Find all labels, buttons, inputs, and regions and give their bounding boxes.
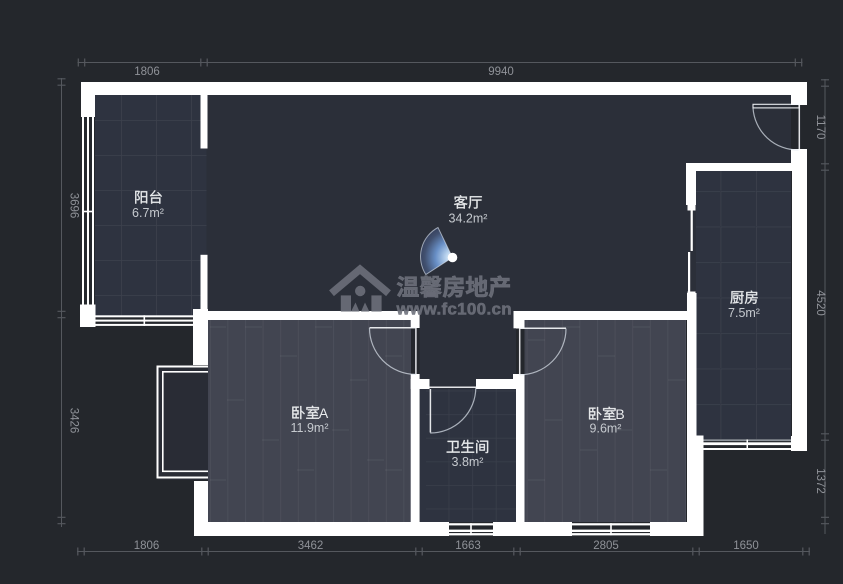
svg-text:9940: 9940 — [488, 66, 514, 78]
svg-text:3696: 3696 — [68, 193, 80, 219]
svg-text:34.2m²: 34.2m² — [449, 211, 488, 225]
svg-text:11.9m²: 11.9m² — [291, 421, 329, 435]
svg-text:3462: 3462 — [298, 540, 324, 552]
svg-text:4520: 4520 — [814, 290, 826, 316]
svg-text:1650: 1650 — [733, 540, 759, 552]
svg-text:2805: 2805 — [593, 540, 619, 552]
svg-text:1806: 1806 — [134, 540, 160, 552]
svg-text:www.fc100.cn: www.fc100.cn — [396, 300, 512, 319]
svg-text:B: B — [615, 406, 624, 422]
svg-text:1806: 1806 — [134, 66, 160, 78]
svg-text:1170: 1170 — [814, 115, 826, 140]
svg-text:6.7m²: 6.7m² — [132, 206, 164, 220]
svg-text:A: A — [319, 405, 329, 421]
svg-text:1372: 1372 — [814, 468, 826, 494]
svg-text:3426: 3426 — [68, 408, 80, 434]
svg-text:9.6m²: 9.6m² — [590, 421, 622, 435]
svg-text:1663: 1663 — [455, 540, 481, 552]
svg-text:3.8m²: 3.8m² — [452, 455, 484, 469]
svg-text:7.5m²: 7.5m² — [728, 306, 760, 320]
